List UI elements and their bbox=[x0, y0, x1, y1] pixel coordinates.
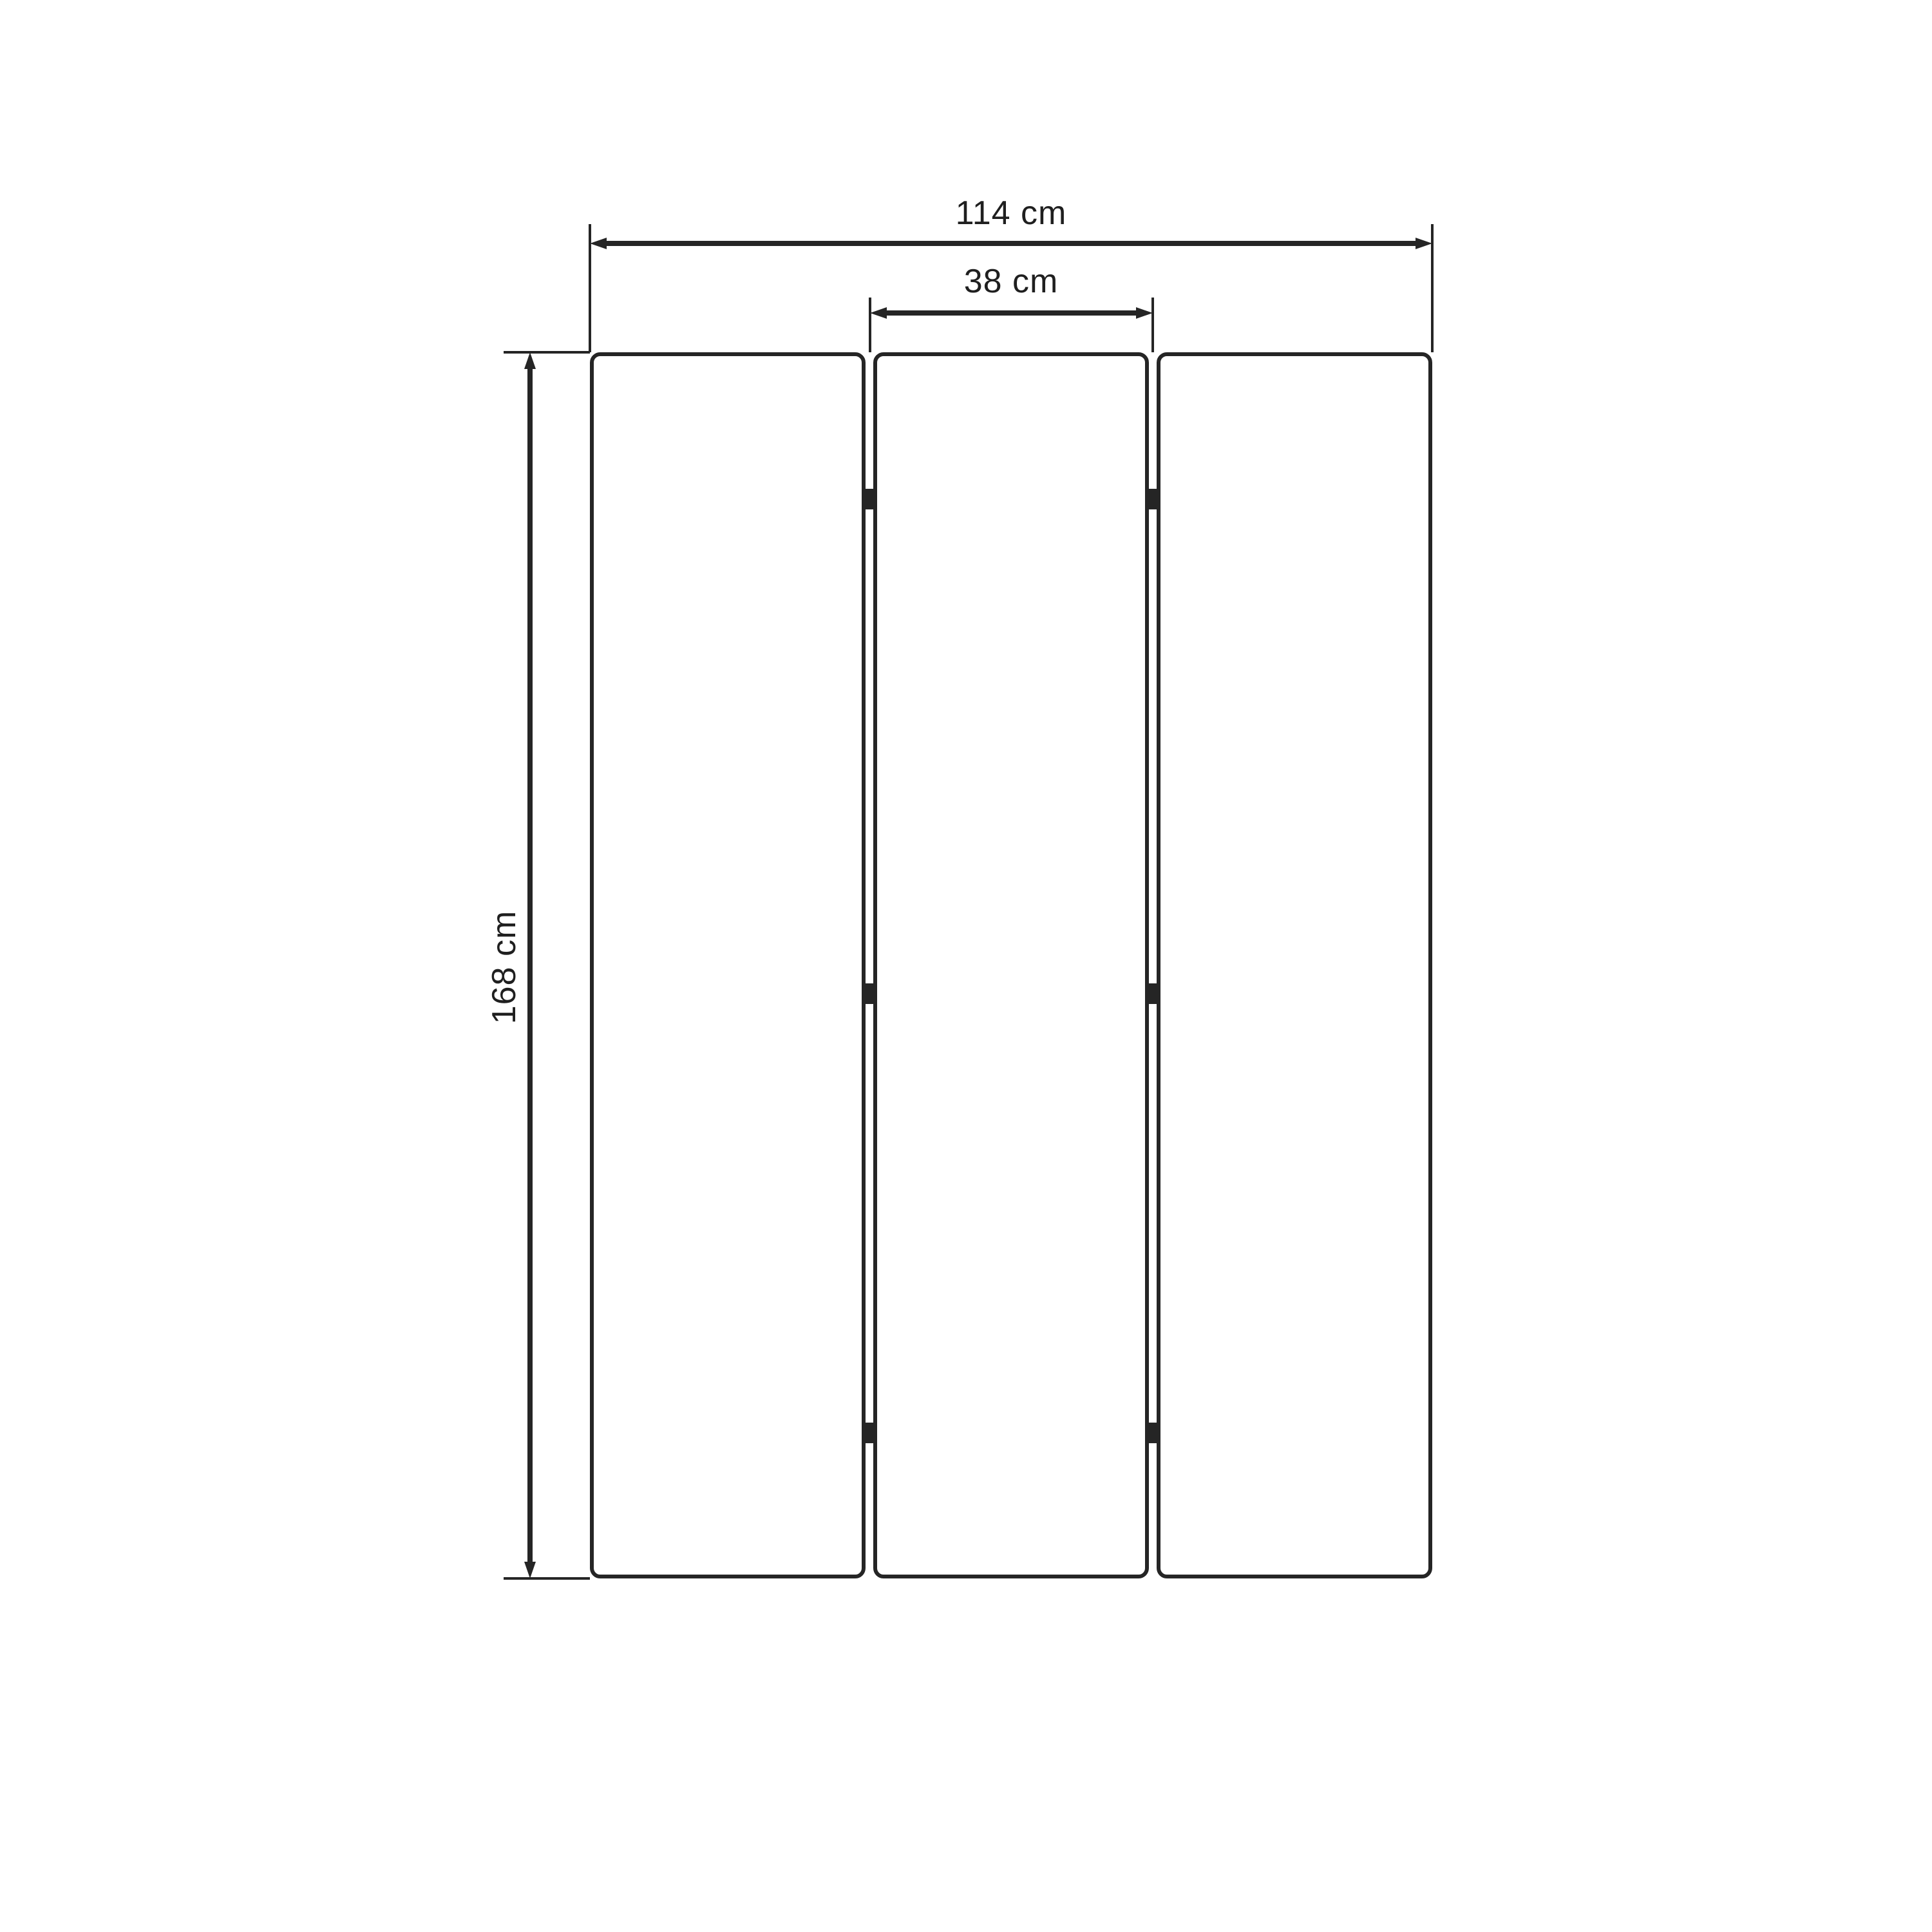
extension-line-right bbox=[1151, 298, 1154, 352]
arrowhead-right-icon bbox=[1416, 238, 1432, 249]
screen-panel-3 bbox=[1157, 352, 1432, 1578]
total-width-label: 114 cm bbox=[956, 194, 1067, 232]
hinge-right-middle bbox=[1148, 983, 1157, 1004]
extension-line-left bbox=[869, 298, 871, 352]
height-label: 168 cm bbox=[485, 911, 524, 1025]
screen-panel-1 bbox=[590, 352, 866, 1578]
hinge-left-middle bbox=[865, 983, 874, 1004]
extension-line-bottom bbox=[504, 1577, 590, 1580]
hinge-left-bottom bbox=[865, 1423, 874, 1443]
arrowhead-right-icon bbox=[1136, 307, 1153, 319]
panel-width-dim-line bbox=[882, 310, 1141, 316]
total-width-dim-line bbox=[601, 241, 1421, 246]
screen-panel-2 bbox=[873, 352, 1149, 1578]
extension-line-top bbox=[504, 351, 590, 354]
height-dim-line bbox=[527, 365, 533, 1566]
hinge-right-bottom bbox=[1148, 1423, 1157, 1443]
dimension-diagram: 114 cm 38 cm 168 cm bbox=[0, 0, 1932, 1932]
arrowhead-up-icon bbox=[524, 352, 536, 369]
hinge-left-top bbox=[865, 489, 874, 509]
panel-width-label: 38 cm bbox=[964, 262, 1059, 301]
arrowhead-left-icon bbox=[590, 238, 607, 249]
arrowhead-down-icon bbox=[524, 1562, 536, 1578]
arrowhead-left-icon bbox=[870, 307, 887, 319]
hinge-right-top bbox=[1148, 489, 1157, 509]
